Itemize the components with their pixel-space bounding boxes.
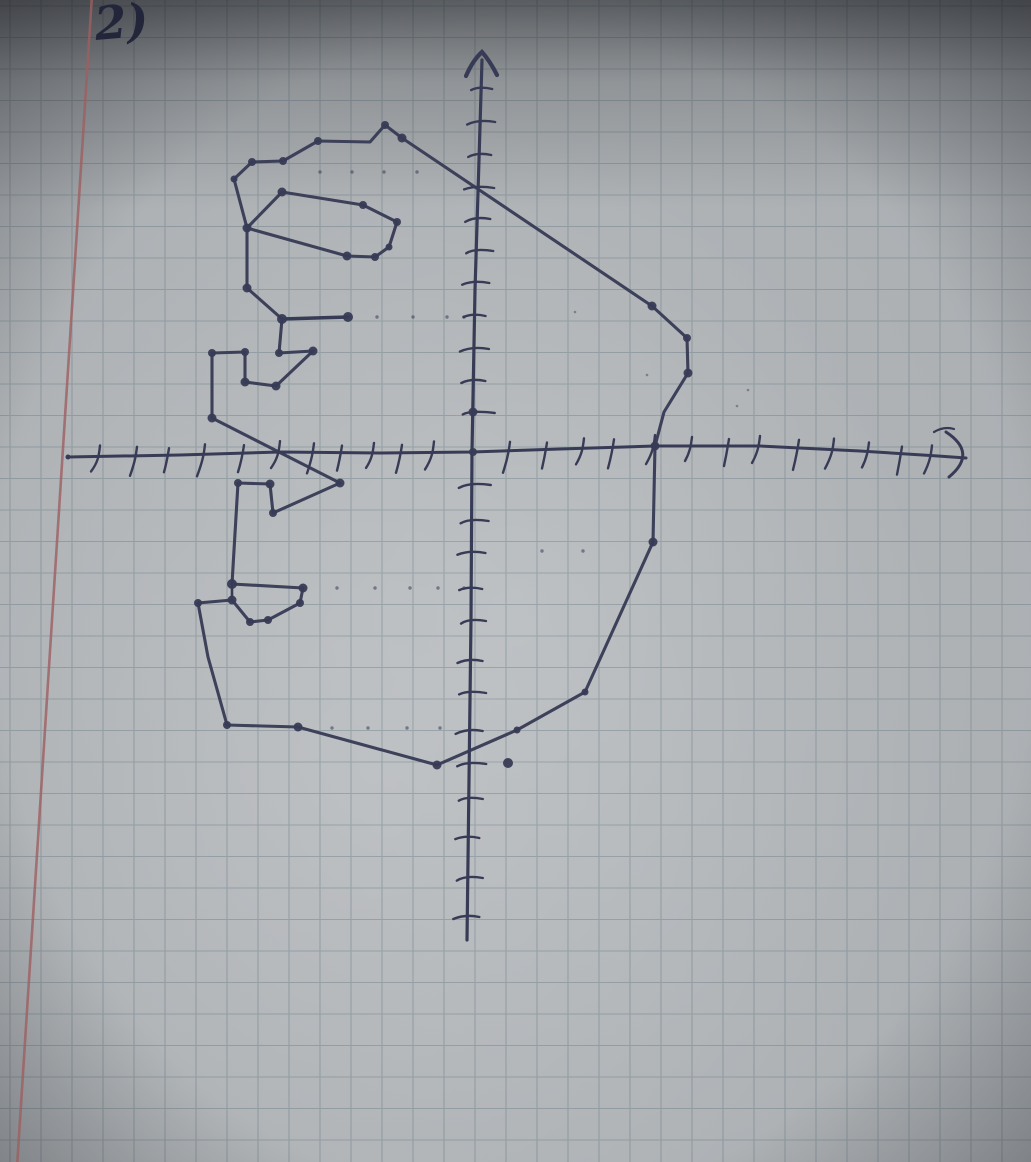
vertex-dot (243, 224, 252, 233)
vertex-dot (194, 599, 202, 607)
vertex-dot (223, 721, 231, 729)
vertex-dot (343, 312, 353, 322)
vertex-dot (648, 302, 657, 311)
vertex-dot (208, 414, 217, 423)
guide-dot (335, 586, 338, 589)
vertex-dot (241, 378, 250, 387)
vertex-dot (248, 158, 256, 166)
vertex-dot (272, 382, 281, 391)
vertex-dot (294, 723, 303, 732)
x-axis-start-dot (66, 455, 71, 460)
vertex-dot (269, 509, 277, 517)
guide-dot (462, 586, 465, 589)
vertex-dot (279, 157, 287, 165)
guide-dot (375, 315, 378, 318)
vertex-dot (243, 284, 252, 293)
notebook-photo: 2) (0, 0, 1031, 1162)
guide-dot (373, 586, 376, 589)
vertex-dot (264, 616, 272, 624)
vertex-dot (343, 252, 352, 261)
vertex-dot (469, 448, 477, 456)
vertex-dot (433, 761, 442, 770)
guide-dot (408, 586, 411, 589)
vertex-dot (684, 369, 693, 378)
exercise-number-label: 2) (91, 0, 150, 51)
vertex-dot (386, 244, 393, 251)
vertex-dot (266, 480, 275, 489)
guide-dot (350, 170, 353, 173)
vertex-dot (359, 201, 367, 209)
ink-speck (646, 374, 649, 377)
vertex-dot (582, 689, 589, 696)
photo-lighting-vignette (0, 0, 1031, 1162)
guide-dot (318, 170, 321, 173)
vertex-dot (234, 479, 242, 487)
vertex-dot (393, 218, 401, 226)
vertex-dot (241, 348, 249, 356)
vertex-dot (309, 347, 318, 356)
figure-arm-stroke (282, 317, 348, 319)
vertex-dot (336, 479, 345, 488)
guide-dot (330, 726, 333, 729)
vertex-dot (683, 334, 691, 342)
guide-dot (436, 586, 439, 589)
vertex-dot (231, 176, 238, 183)
guide-dot (366, 726, 369, 729)
guide-dot (415, 170, 418, 173)
ink-speck (747, 389, 750, 392)
guide-dot (581, 549, 584, 552)
vertex-dot (227, 579, 237, 589)
vertex-dot (275, 349, 283, 357)
vertex-dot (277, 314, 287, 324)
vertex-dot (228, 596, 237, 605)
notebook-page-scene: 2) (0, 0, 1031, 1162)
vertex-dot (651, 442, 660, 451)
vertex-dot (649, 538, 658, 547)
guide-dot (405, 726, 408, 729)
vertex-dot (299, 584, 308, 593)
vertex-dot (296, 599, 304, 607)
guide-dot (411, 315, 414, 318)
guide-dot (382, 170, 385, 173)
guide-dot (438, 726, 441, 729)
ink-speck (574, 311, 577, 314)
vertex-dot (371, 253, 379, 261)
vertex-dot (514, 727, 521, 734)
vertex-dot (314, 137, 322, 145)
vertex-dot (208, 349, 216, 357)
ink-speck (736, 405, 739, 408)
vertex-dot (469, 408, 478, 417)
vertex-dot (278, 188, 287, 197)
vertex-dot (381, 121, 389, 129)
guide-dot (540, 549, 543, 552)
vertex-dot (398, 134, 407, 143)
guide-dot (462, 315, 465, 318)
vertex-dot (246, 618, 254, 626)
guide-dot (445, 315, 448, 318)
vertex-dot (503, 758, 513, 768)
